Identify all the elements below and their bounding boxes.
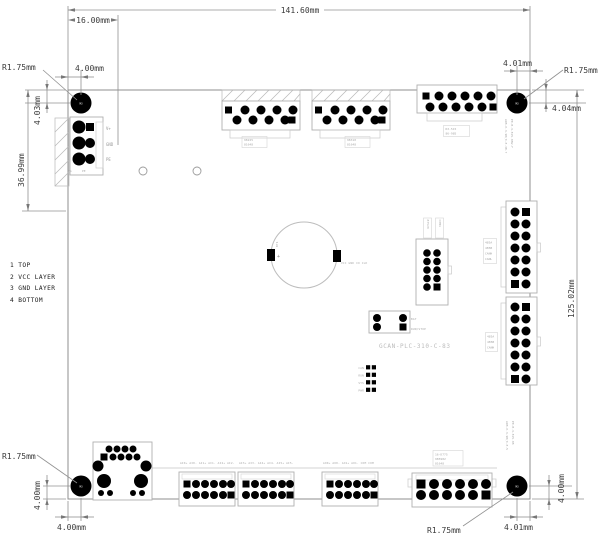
mounting-hole-bottom-right: M3 bbox=[507, 476, 528, 497]
dim-br-y: 4.00mm bbox=[557, 474, 566, 503]
ref-table-b2: 81648 bbox=[347, 143, 356, 147]
ref-table-d3: CANH bbox=[485, 252, 492, 256]
header-2x5-connector bbox=[416, 239, 452, 305]
ref-table-a1: 98225 bbox=[244, 138, 253, 142]
hatch-strip-power-connector bbox=[55, 118, 69, 186]
mounting-hole-top-left: M3 bbox=[71, 93, 92, 114]
ref-table-c2: 86-985 bbox=[446, 132, 457, 136]
led-label-run: RUN bbox=[358, 374, 364, 378]
vertical-text-top-1: A9B.0-3.9B(0.8.3B.7 bbox=[504, 119, 508, 154]
layer-legend: 1 TOP 2 VCC LAYER 3 GND LAYER 4 BOTTOM bbox=[10, 262, 55, 304]
board-title: GCAN-PLC-310-C-83 bbox=[379, 343, 451, 350]
ref-table-c1: R3-515 bbox=[446, 127, 457, 131]
rj45-connector bbox=[93, 442, 153, 500]
right-terminal-connector-1 bbox=[501, 201, 541, 293]
legend-row-gnd: 3 GND LAYER bbox=[10, 285, 55, 292]
dim-br-radius: R1.75mm bbox=[427, 526, 461, 535]
power-pin-label-pe: PE bbox=[106, 157, 111, 162]
dim-bl-radius: R1.75mm bbox=[2, 452, 36, 461]
pin-labels-ao: AO0+ AO0- AO1+ AO1- COM COM bbox=[323, 461, 374, 465]
pin-labels-ai-1: AI0+ AI0- AI1+ AI1- AI2+ AI2- bbox=[180, 461, 235, 465]
dim-tr-radius: R1.75mm bbox=[564, 66, 598, 75]
dim-bl-y: 4.00mm bbox=[33, 481, 42, 510]
led-block: CAN RUN SYS PWR bbox=[358, 365, 376, 392]
header-ref-tables: 83520 C0M1 bbox=[424, 218, 444, 238]
dim-left-inset: 16.00mm bbox=[76, 16, 110, 25]
ref-table-col-1: 83520 bbox=[426, 220, 430, 230]
dim-tr-x: 4.01mm bbox=[503, 59, 532, 68]
led-label-sys: SYS bbox=[358, 381, 364, 385]
jumper-label-runstop: RUN/STOP bbox=[411, 327, 426, 331]
legend-row-vcc: 2 VCC LAYER bbox=[10, 274, 55, 281]
top-right-connector bbox=[417, 85, 497, 121]
power-pin-label-gnd: GND bbox=[106, 142, 114, 147]
led-label-pwr: PWR bbox=[358, 389, 364, 393]
vertical-text-bottom-2: P8.B-3.815.0B bbox=[511, 421, 515, 445]
mounting-hole-top-right: M3 bbox=[507, 93, 528, 114]
board-hole-2 bbox=[193, 167, 201, 175]
dim-tl-radius: R1.75mm bbox=[2, 63, 36, 72]
ref-table-e2: 485B bbox=[487, 340, 494, 344]
vertical-text-bottom-1: A9B.0-3.9B(0.8.5 bbox=[505, 421, 509, 450]
drawing-svg: V+ GND PE FG PE M3 M3 M3 M3 bbox=[0, 0, 600, 538]
runstop-jumper: BAT RUN/STOP bbox=[369, 311, 426, 333]
ref-table-d4: CANL bbox=[485, 257, 492, 261]
pin-labels-ai-2: AI3+ AI3- AI4+ AI4- AI5+ AI5- bbox=[239, 461, 294, 465]
ref-table-f2: 985982 bbox=[435, 457, 446, 461]
mounting-hole-bottom-left: M3 bbox=[71, 476, 92, 497]
ref-table-d1: 485A bbox=[485, 241, 492, 245]
board-outline bbox=[68, 90, 530, 499]
battery-designator: BT1 bbox=[275, 241, 279, 247]
dim-br-x: 4.01mm bbox=[504, 523, 533, 532]
dim-board-height: 125.02mm bbox=[567, 279, 576, 318]
battery-side-pins-label: VCC GND IO CLK bbox=[341, 261, 367, 265]
hatch-strip-top-right-connector bbox=[312, 90, 390, 101]
ref-table-d2: 485B bbox=[485, 246, 492, 250]
power-silk-pe: PE bbox=[82, 169, 86, 173]
micro-ref-tables: 98225 81648 98310 81648 R3-515 86-985 48… bbox=[242, 126, 498, 467]
led-label-can: CAN bbox=[358, 366, 364, 370]
ref-table-f1: 16-D775 bbox=[435, 453, 448, 457]
legend-row-top: 1 TOP bbox=[10, 262, 31, 269]
jumper-label-bat: BAT bbox=[411, 317, 417, 321]
right-terminal-connector-2 bbox=[501, 297, 541, 385]
battery-holder: BT1 + VCC GND IO CLK bbox=[267, 222, 367, 288]
ref-table-e1: 485A bbox=[487, 335, 494, 339]
board-hole-1 bbox=[139, 167, 147, 175]
power-silk-fg: FG bbox=[68, 169, 72, 173]
dim-board-width: 141.60mm bbox=[281, 6, 320, 15]
pcb-dimension-drawing: V+ GND PE FG PE M3 M3 M3 M3 bbox=[0, 0, 600, 538]
top-terminal-connector-1 bbox=[222, 101, 300, 138]
dim-tr-y: 4.04mm bbox=[552, 104, 581, 113]
battery-plus-mark: + bbox=[277, 254, 280, 260]
ref-table-col-2: C0M1 bbox=[438, 220, 442, 228]
dim-tl-y: 4.03mm bbox=[33, 96, 42, 125]
ref-table-e3: CANH bbox=[487, 346, 494, 350]
hole-mark-tl: M3 bbox=[79, 102, 83, 106]
ref-table-a2: 81648 bbox=[244, 143, 253, 147]
top-terminal-connector-2 bbox=[312, 101, 390, 138]
dim-tl-x: 4.00mm bbox=[75, 64, 104, 73]
hole-mark-br: M3 bbox=[515, 485, 519, 489]
bottom-right-connector bbox=[408, 473, 496, 507]
power-pin-label-vplus: V+ bbox=[106, 126, 111, 131]
dim-bl-x: 4.00mm bbox=[57, 523, 86, 532]
dim-tl-span: 36.99mm bbox=[17, 153, 26, 187]
ref-table-b1: 98310 bbox=[347, 138, 356, 142]
hole-mark-bl: M3 bbox=[79, 485, 83, 489]
hatch-strip-top-left-connector bbox=[222, 90, 300, 101]
vertical-text-top-2: P8.B-3.815.0BW.F bbox=[510, 119, 514, 148]
hole-mark-tr: M3 bbox=[515, 102, 519, 106]
legend-row-bottom: 4 BOTTOM bbox=[10, 297, 43, 304]
ref-table-f3: 81648 bbox=[435, 462, 444, 466]
power-connector: V+ GND PE FG PE bbox=[68, 117, 114, 175]
